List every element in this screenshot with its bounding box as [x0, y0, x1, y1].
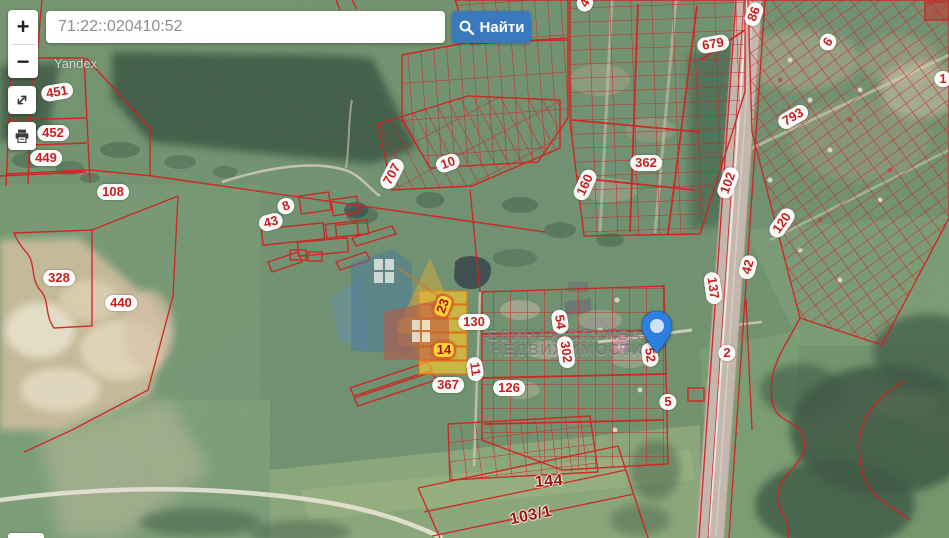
map-viewport[interactable]: ЕДИНАЯ СЛУЖБА НЕДВИЖИМОСТИ 4514524491083… — [0, 0, 949, 538]
zoom-out-button[interactable]: − — [8, 45, 38, 79]
satellite-map — [0, 0, 949, 538]
map-marker-pin[interactable] — [642, 311, 672, 353]
fullscreen-button[interactable] — [8, 86, 36, 114]
fullscreen-icon — [14, 91, 30, 109]
zoom-control: + − — [8, 10, 38, 78]
zoom-in-button[interactable]: + — [8, 10, 38, 44]
printer-icon — [14, 127, 30, 145]
yandex-attribution[interactable]: Yandex — [54, 56, 97, 71]
find-button[interactable]: Найти — [452, 11, 531, 43]
print-button[interactable] — [8, 122, 36, 150]
search-icon — [459, 20, 474, 35]
find-button-label: Найти — [480, 19, 525, 36]
cadastral-search-input[interactable] — [46, 11, 445, 43]
cropped-control — [8, 533, 44, 538]
